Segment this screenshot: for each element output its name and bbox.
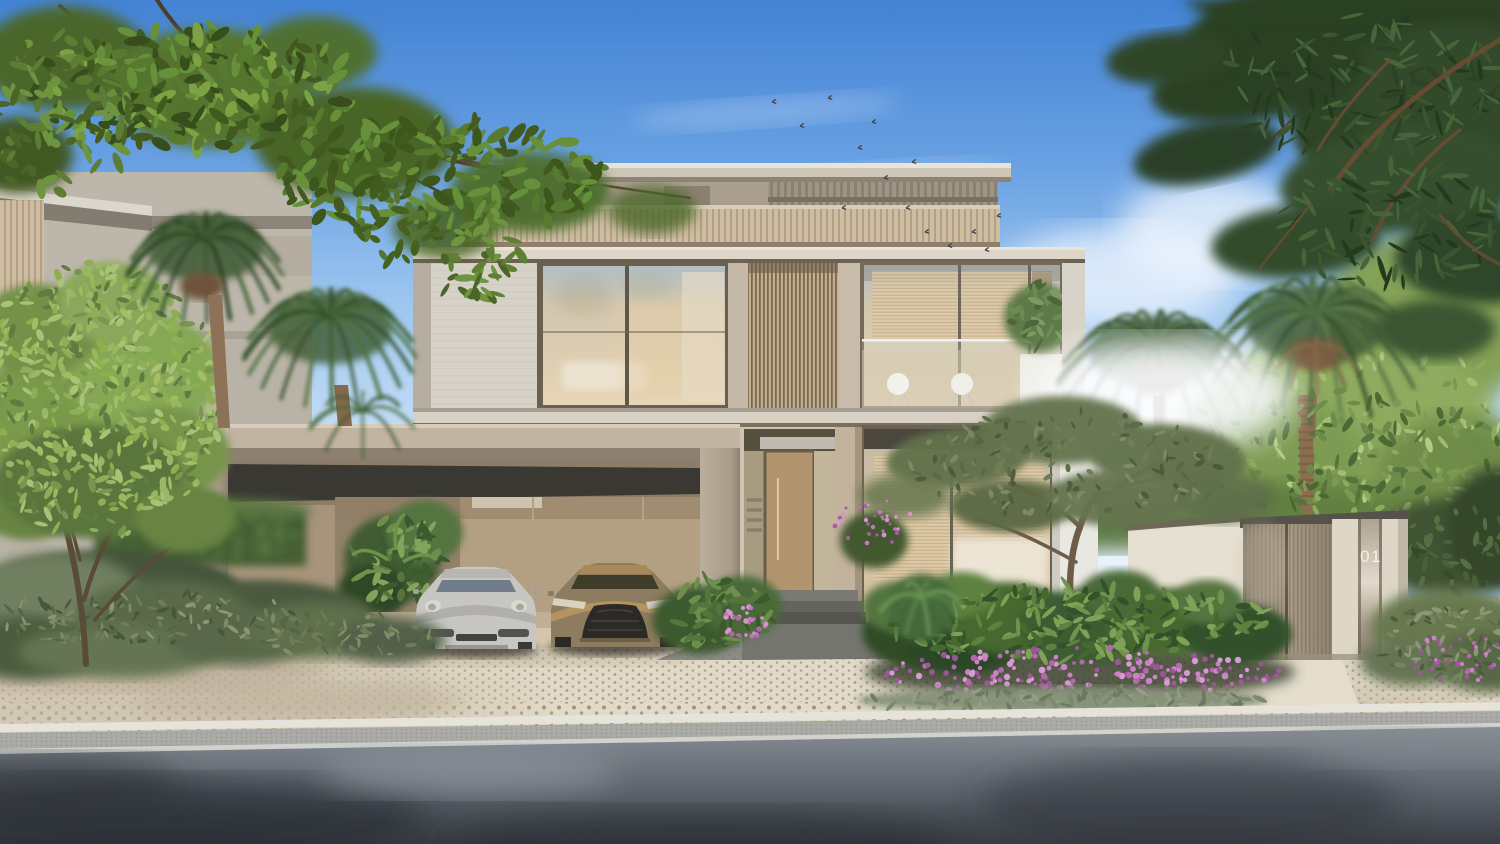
svg-text:01: 01 — [1360, 547, 1382, 566]
